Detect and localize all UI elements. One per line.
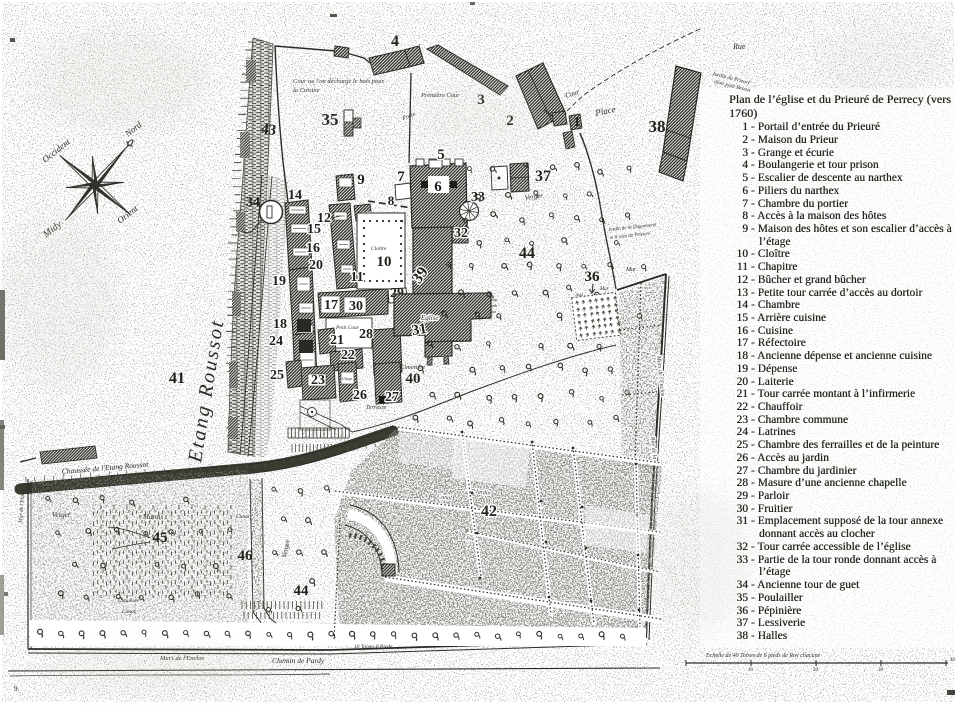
svg-text:Chaussée: Chaussée	[118, 598, 140, 604]
svg-text:23: 23	[311, 373, 325, 388]
svg-text:Mur: Mur	[625, 267, 637, 273]
svg-text:20: 20	[309, 258, 323, 273]
svg-text:46: 46	[238, 548, 254, 564]
svg-text:34: 34	[246, 195, 260, 210]
svg-text:30: 30	[878, 668, 884, 673]
svg-text:10: 10	[377, 254, 392, 270]
svg-text:36: 36	[585, 269, 601, 285]
svg-text:Rue: Rue	[732, 42, 746, 51]
svg-text:41: 41	[169, 370, 185, 387]
svg-text:22: 22	[341, 348, 355, 363]
svg-text:Chap.: Chap.	[342, 376, 353, 381]
svg-text:14: 14	[288, 188, 302, 203]
svg-text:26: 26	[353, 388, 367, 403]
svg-text:Sud: Sud	[576, 292, 584, 297]
svg-text:6: 6	[434, 179, 442, 195]
svg-text:25: 25	[270, 368, 284, 383]
svg-text:Canal: Canal	[122, 609, 136, 615]
svg-text:Verger: Verger	[52, 511, 71, 519]
svg-text:Cloître: Cloître	[371, 246, 387, 252]
svg-text:7: 7	[397, 169, 405, 185]
svg-text:Echelle de 40 Toises de 6 pied: Echelle de 40 Toises de 6 pieds de Roy c…	[705, 652, 821, 659]
svg-text:38: 38	[649, 117, 666, 136]
svg-text:Pré: Pré	[465, 536, 475, 543]
svg-text:18: 18	[273, 317, 287, 332]
svg-text:Petit Cour: Petit Cour	[335, 325, 360, 331]
svg-text:21: 21	[330, 333, 344, 348]
svg-text:11: 11	[350, 270, 363, 285]
svg-text:16: 16	[306, 241, 320, 256]
svg-text:9: 9	[357, 172, 365, 188]
svg-text:43: 43	[260, 121, 277, 139]
svg-text:8: 8	[388, 193, 395, 208]
svg-text:Chemin de Pardy: Chemin de Pardy	[272, 656, 325, 665]
svg-text:Marais: Marais	[142, 513, 164, 521]
svg-text:12: 12	[317, 211, 331, 226]
svg-text:32: 32	[454, 226, 468, 241]
svg-text:28: 28	[359, 327, 373, 342]
svg-text:40: 40	[950, 658, 956, 663]
svg-text:42: 42	[481, 503, 497, 520]
svg-text:17: 17	[324, 298, 338, 313]
svg-text:10 Toises 8 Piede: 10 Toises 8 Piede	[354, 644, 393, 650]
svg-text:9.: 9.	[14, 685, 20, 693]
svg-text:10: 10	[748, 668, 754, 673]
svg-text:45: 45	[153, 530, 168, 546]
svg-text:44: 44	[294, 583, 310, 599]
svg-text:Canal: Canal	[236, 514, 250, 520]
svg-text:Mur: Mur	[599, 287, 609, 292]
svg-text:27: 27	[385, 390, 399, 405]
svg-text:44: 44	[519, 245, 535, 262]
svg-text:31: 31	[411, 321, 429, 339]
svg-text:19: 19	[272, 274, 286, 289]
svg-text:30: 30	[349, 299, 363, 314]
svg-text:20: 20	[813, 668, 819, 673]
svg-text:24: 24	[269, 334, 283, 349]
svg-text:1: 1	[574, 115, 581, 130]
svg-text:4: 4	[391, 33, 399, 50]
